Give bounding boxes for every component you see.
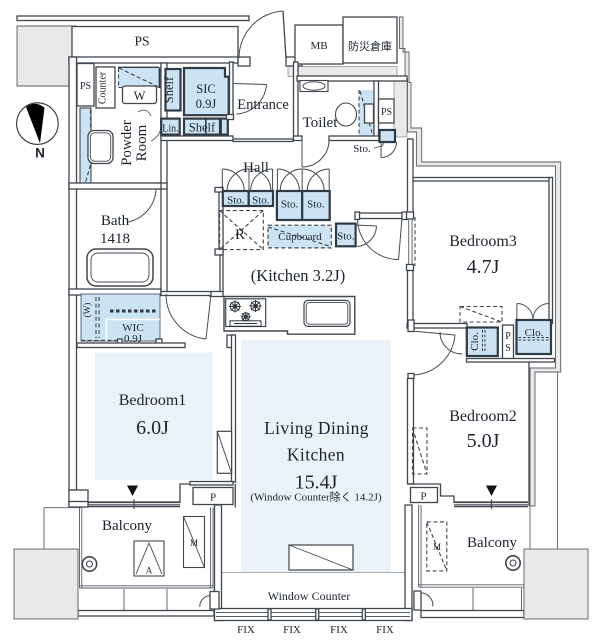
svg-text:Counter: Counter [98,71,109,104]
svg-text:4.7J: 4.7J [467,256,500,278]
svg-text:Balcony: Balcony [467,535,517,551]
svg-text:Sto.: Sto. [281,199,299,211]
svg-text:Kitchen: Kitchen [287,445,345,465]
svg-text:Hall: Hall [243,160,269,176]
svg-text:Window Counter: Window Counter [268,589,351,603]
svg-text:Bath: Bath [101,213,130,229]
svg-text:FIX: FIX [283,624,301,636]
svg-text:M: M [190,538,198,548]
svg-text:FIX: FIX [376,624,394,636]
svg-text:SIC: SIC [196,82,215,96]
svg-text:Toilet: Toilet [303,115,339,131]
svg-text:Powder: Powder [119,120,135,166]
svg-text:A: A [146,566,153,576]
svg-text:Cupboard: Cupboard [278,231,322,243]
svg-text:PS: PS [134,34,149,49]
svg-text:(W): (W) [82,303,92,318]
svg-text:15.4J: 15.4J [295,472,338,494]
svg-text:Sto.: Sto. [227,195,245,207]
svg-text:Lin.: Lin. [162,124,178,135]
svg-text:P: P [210,492,216,504]
svg-text:Shelf: Shelf [189,121,216,135]
svg-text:W: W [134,89,146,103]
svg-text:5.0J: 5.0J [467,430,500,452]
svg-text:Bedroom3: Bedroom3 [449,233,517,250]
svg-text:FIX: FIX [330,624,348,636]
svg-text:M: M [433,542,441,552]
svg-text:N: N [35,146,45,161]
svg-text:Room: Room [134,124,150,161]
svg-text:Bedroom1: Bedroom1 [119,392,187,409]
svg-text:S: S [505,343,511,354]
svg-text:Balcony: Balcony [102,518,152,534]
svg-text:P: P [420,491,426,503]
svg-text:1418: 1418 [100,231,130,247]
svg-text:Living Dining: Living Dining [264,418,369,438]
svg-text:Entrance: Entrance [237,97,289,113]
svg-text:FIX: FIX [237,624,255,636]
svg-text:PS: PS [381,107,392,118]
svg-text:(Window Counter除く 14.2J): (Window Counter除く 14.2J) [250,490,382,504]
svg-text:Sto.: Sto. [353,143,371,155]
svg-text:防災倉庫: 防災倉庫 [348,39,392,53]
svg-text:Shelf: Shelf [162,76,176,103]
svg-text:PS: PS [80,81,91,92]
svg-text:Sto.: Sto. [252,195,270,207]
svg-text:0.9J: 0.9J [196,97,217,111]
svg-text:Clo.: Clo. [469,332,481,351]
svg-text:6.0J: 6.0J [136,417,169,439]
svg-text:(Kitchen 3.2J): (Kitchen 3.2J) [251,266,345,285]
svg-text:Sto.: Sto. [307,199,325,211]
svg-text:R: R [235,227,245,243]
svg-text:Bedroom2: Bedroom2 [449,408,517,425]
svg-text:Sto.: Sto. [337,231,355,243]
svg-text:P: P [505,331,511,342]
svg-text:MB: MB [310,40,327,52]
